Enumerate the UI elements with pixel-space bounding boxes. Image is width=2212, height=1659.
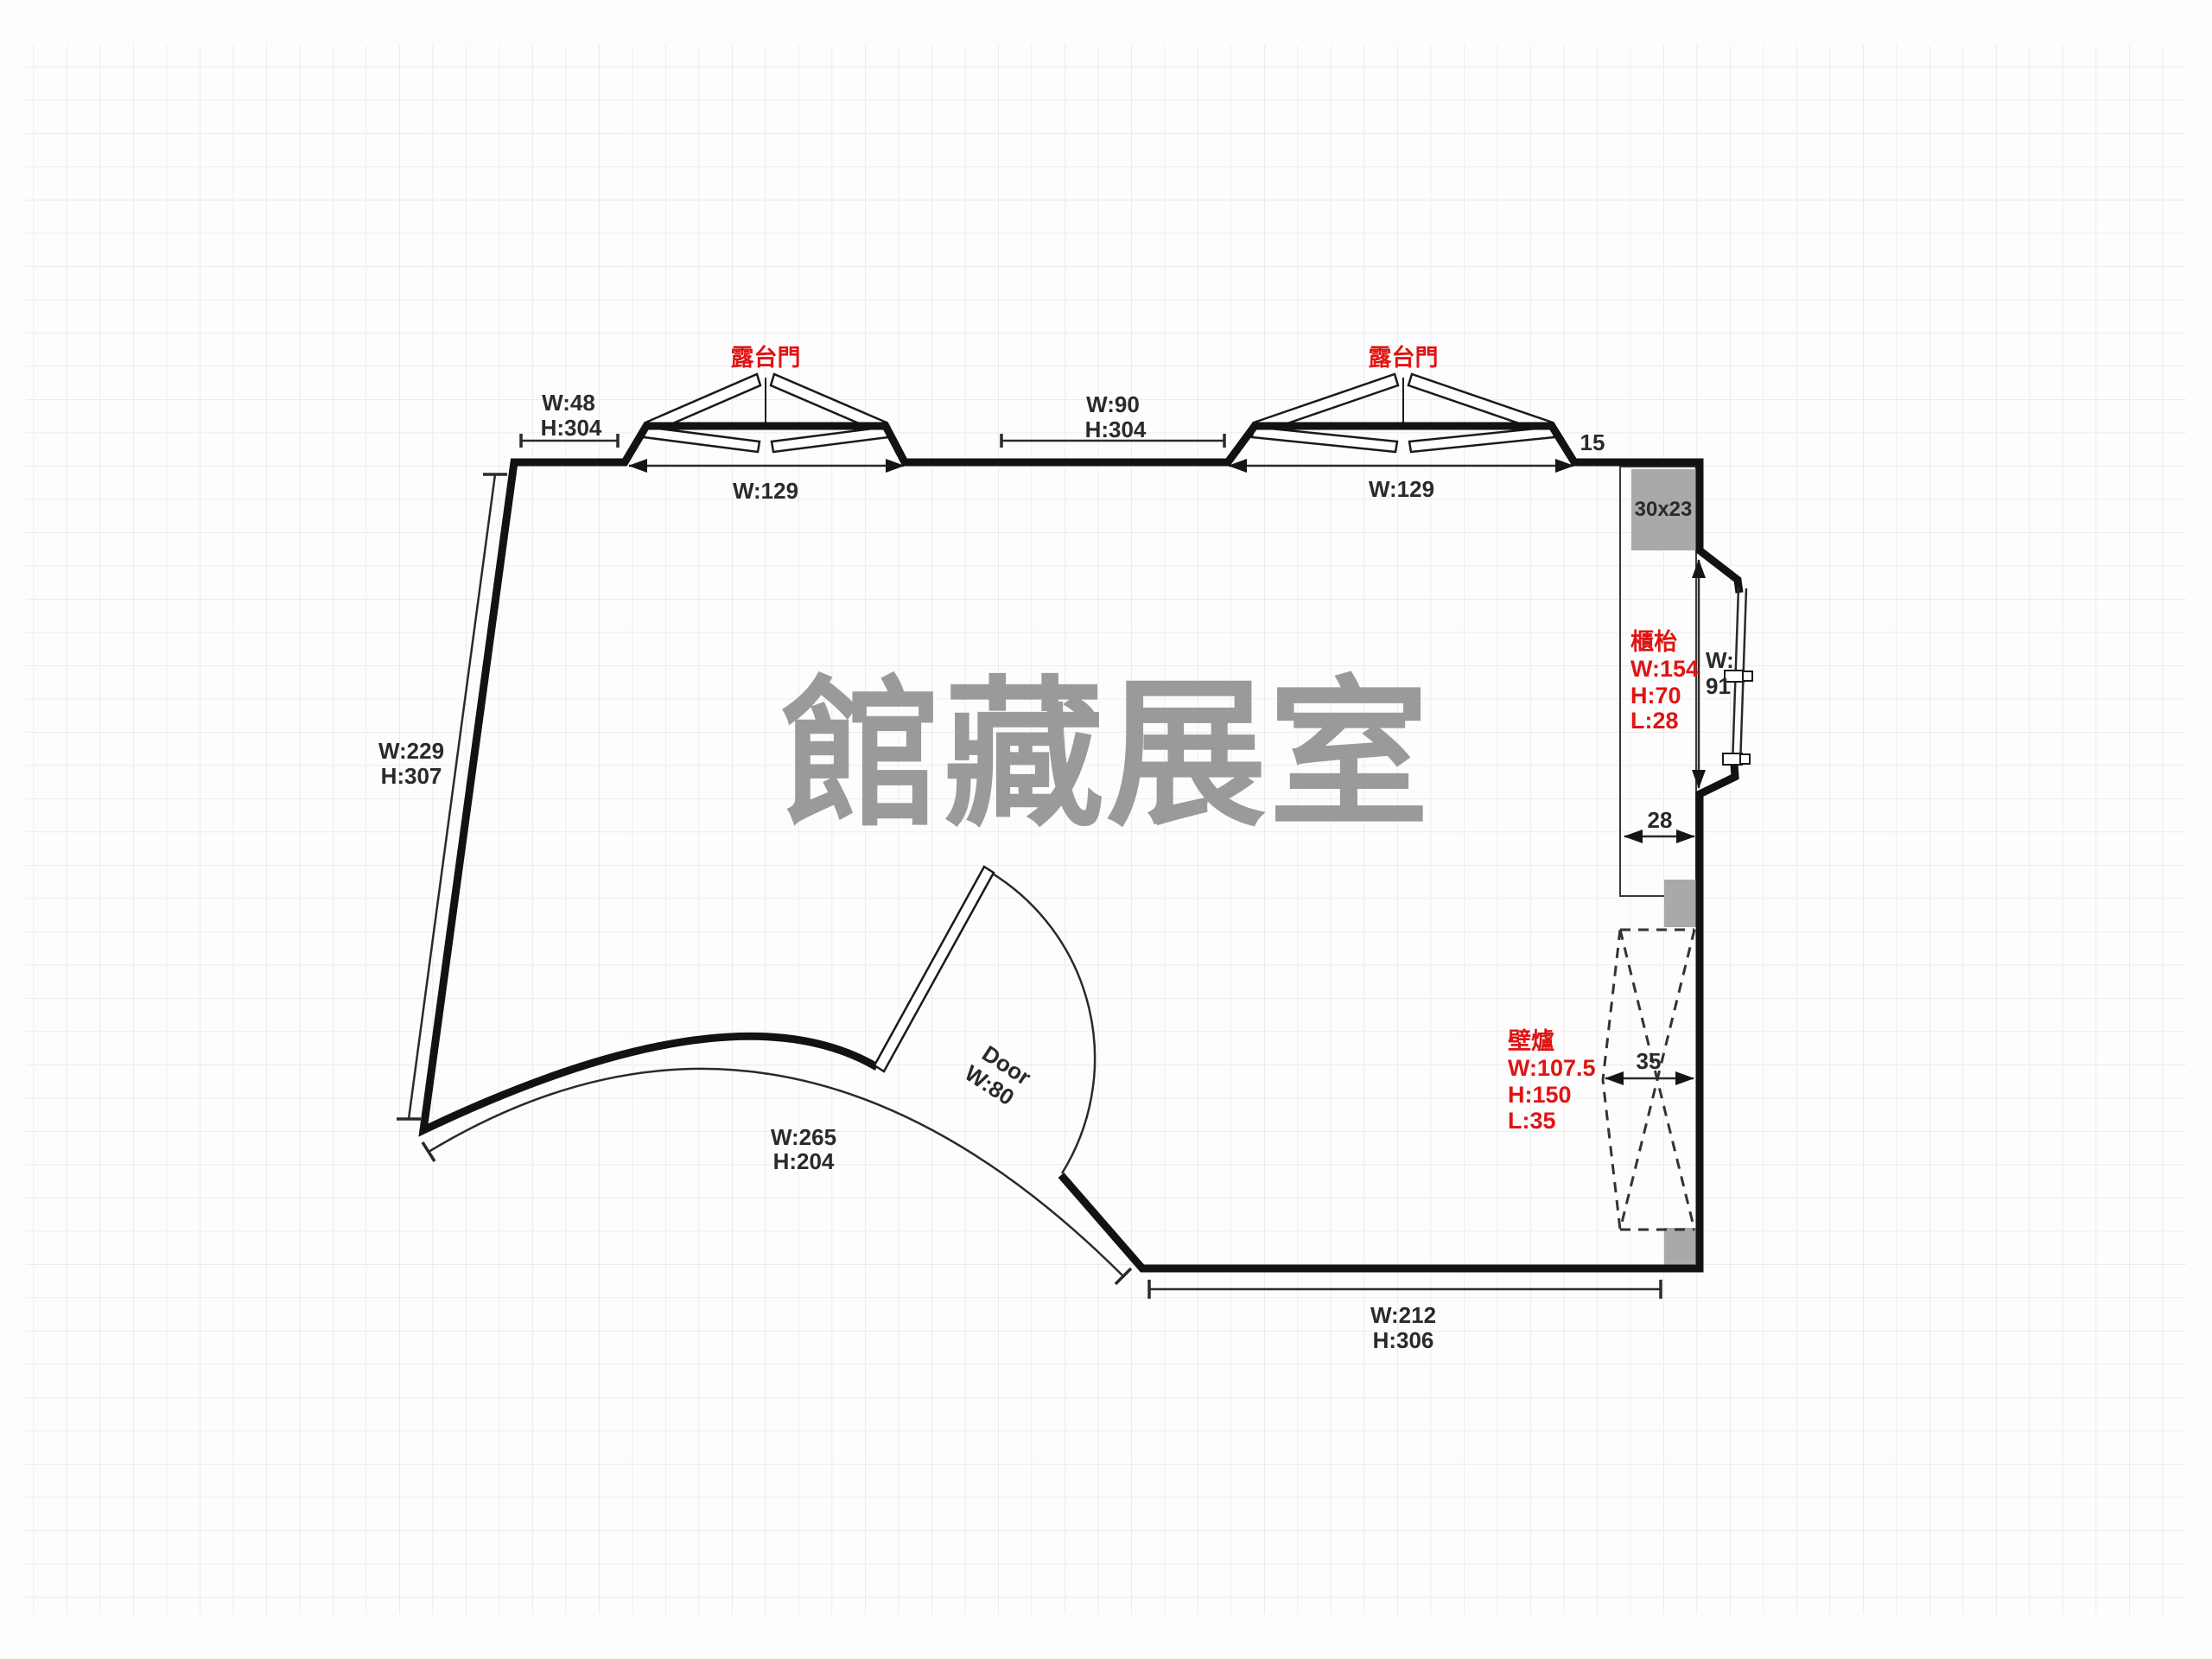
dim-w129-1-label: W:129 xyxy=(733,478,798,504)
dim-h307-label: H:307 xyxy=(381,763,442,789)
dim-w212-label: W:212 xyxy=(1370,1302,1436,1328)
dim-w48-label: W:48 xyxy=(542,390,595,416)
counter-label: 櫃枱 xyxy=(1630,629,1677,655)
counter-l-label: L:28 xyxy=(1630,708,1679,734)
fireplace-h-label: H:150 xyxy=(1508,1082,1572,1108)
dim-h204-label: H:204 xyxy=(773,1148,835,1174)
dim-w129-2-label: W:129 xyxy=(1369,476,1434,502)
dim-h304-2-label: H:304 xyxy=(1085,416,1147,442)
bay-window-w-value-label: 91 xyxy=(1706,673,1731,699)
balcony-door-2-label: 露台門 xyxy=(1369,344,1439,371)
dim-h306-label: H:306 xyxy=(1373,1327,1434,1353)
floorplan-drawing: 館藏展室 xyxy=(0,0,2212,1659)
room-title-watermark: 館藏展室 xyxy=(781,668,1431,846)
counter-w-label: W:154 xyxy=(1630,656,1699,682)
dim-w229-label: W:229 xyxy=(378,738,444,764)
counter-h-label: H:70 xyxy=(1630,683,1681,709)
corner-block-label: 30x23 xyxy=(1635,498,1693,521)
balcony-door-1-label: 露台門 xyxy=(731,344,801,371)
dim-w90-label: W:90 xyxy=(1086,391,1140,417)
pillar-block-mid[interactable] xyxy=(1664,880,1696,927)
dim-w265-label: W:265 xyxy=(771,1124,836,1150)
dim-h304-1-label: H:304 xyxy=(541,415,602,441)
floorplan-canvas: 館藏展室 xyxy=(0,0,2212,1659)
fireplace-l-label: L:35 xyxy=(1508,1108,1556,1134)
pillar-block-bottom[interactable] xyxy=(1664,1228,1696,1267)
dim-15-label: 15 xyxy=(1580,429,1605,455)
counter-depth-label: 28 xyxy=(1648,807,1673,833)
bay-window-w-prefix-label: W: xyxy=(1706,647,1734,673)
fireplace-label: 壁爐 xyxy=(1508,1028,1554,1054)
fireplace-depth-label: 35 xyxy=(1637,1048,1662,1074)
fireplace-w-label: W:107.5 xyxy=(1508,1055,1596,1081)
